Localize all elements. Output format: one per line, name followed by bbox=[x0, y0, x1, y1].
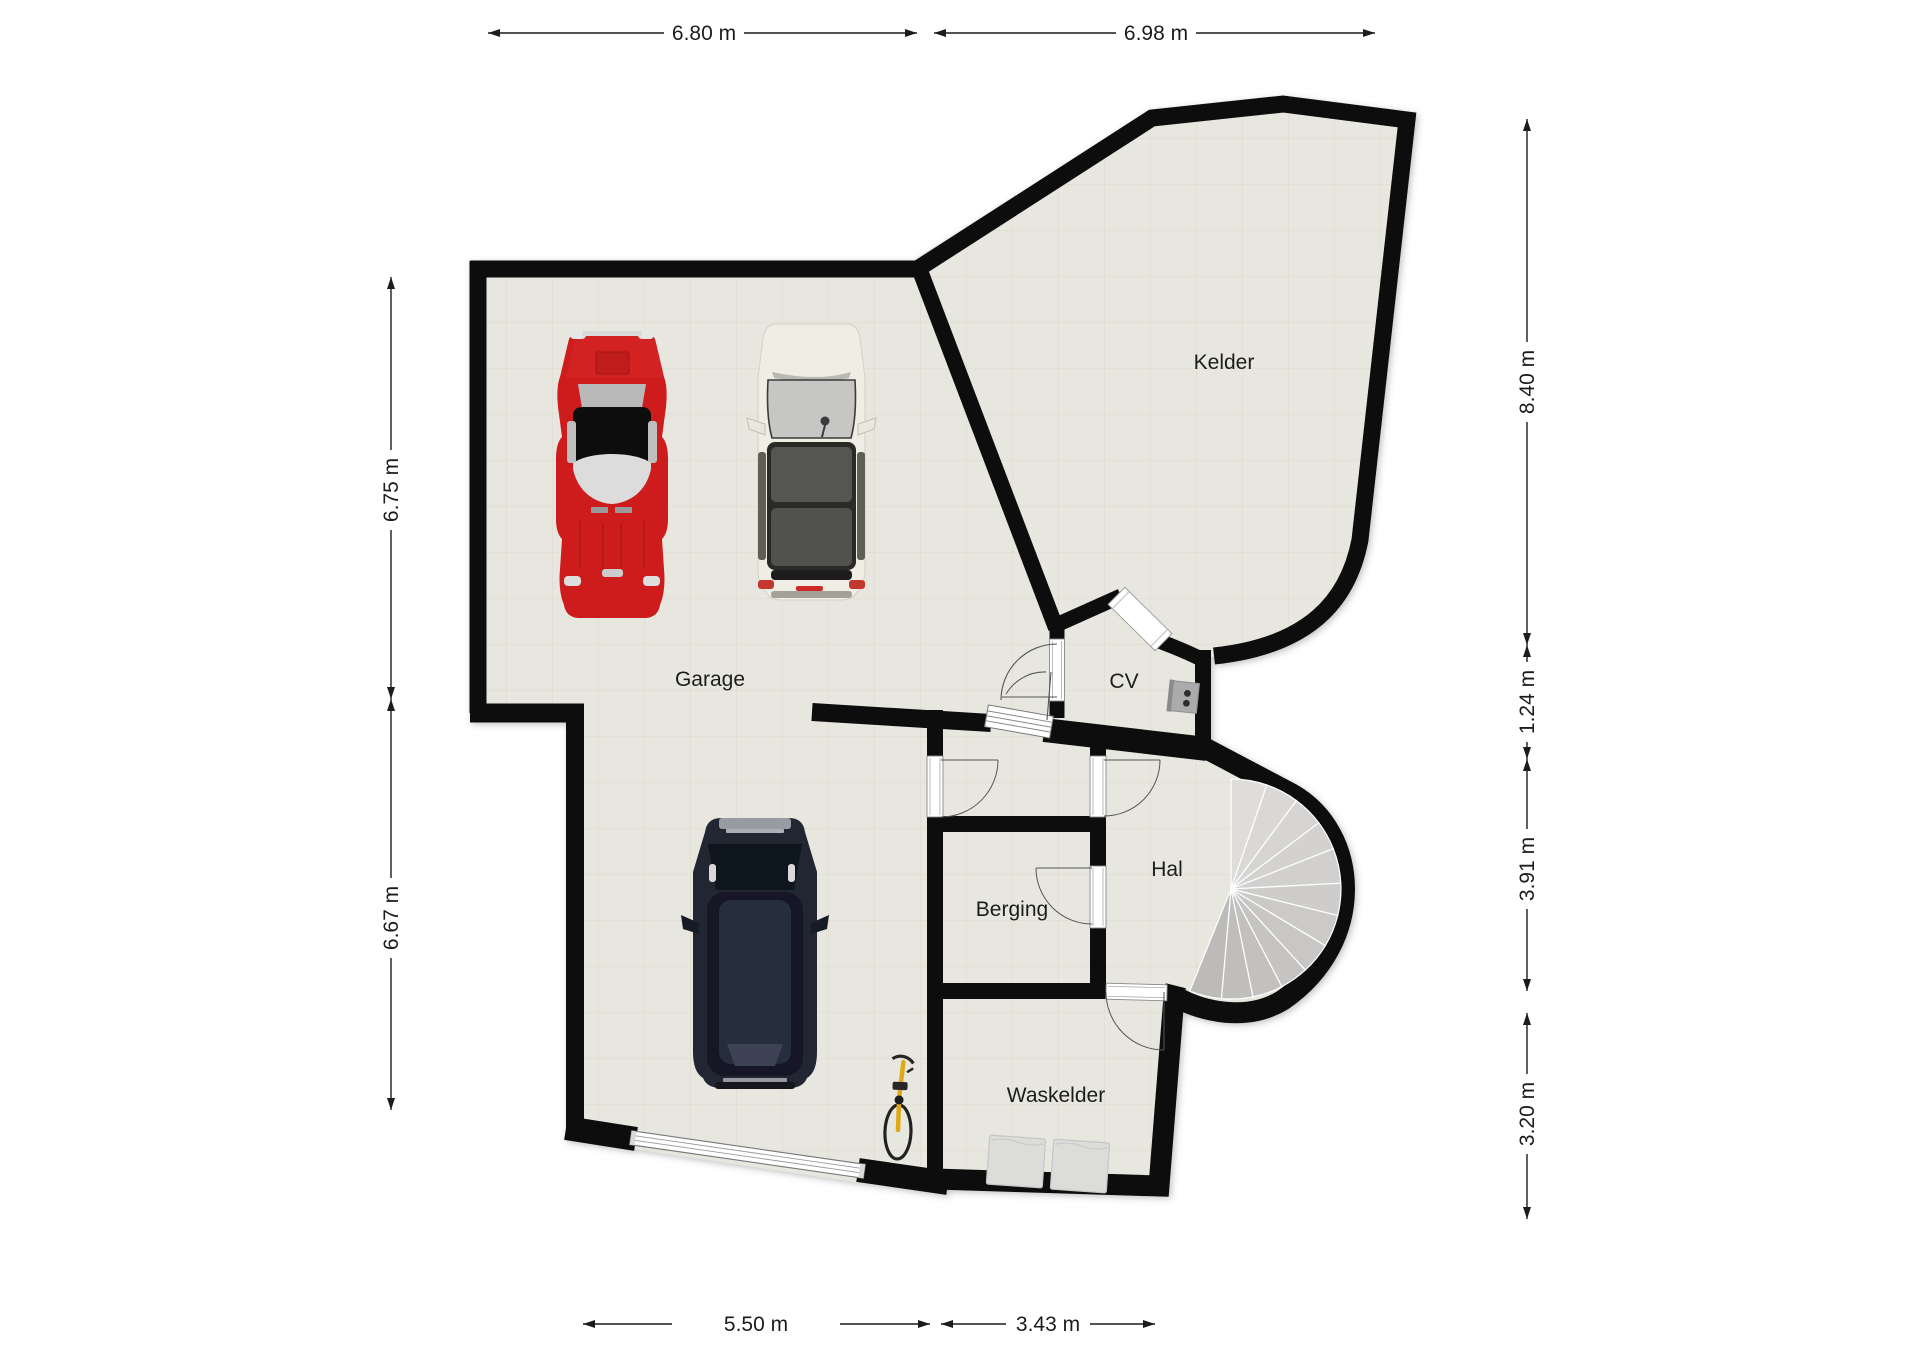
svg-text:Garage: Garage bbox=[675, 668, 745, 691]
svg-text:3.20 m: 3.20 m bbox=[1516, 1082, 1539, 1146]
svg-text:6.80 m: 6.80 m bbox=[672, 22, 736, 45]
svg-text:8.40 m: 8.40 m bbox=[1516, 350, 1539, 414]
svg-text:6.75 m: 6.75 m bbox=[380, 458, 403, 522]
svg-text:6.67 m: 6.67 m bbox=[380, 886, 403, 950]
svg-text:Berging: Berging bbox=[976, 898, 1048, 921]
svg-text:5.50 m: 5.50 m bbox=[724, 1313, 788, 1336]
svg-text:Kelder: Kelder bbox=[1194, 351, 1255, 374]
svg-text:Hal: Hal bbox=[1151, 858, 1183, 881]
svg-text:Waskelder: Waskelder bbox=[1007, 1084, 1105, 1107]
svg-text:6.98 m: 6.98 m bbox=[1124, 22, 1188, 45]
svg-text:CV: CV bbox=[1109, 670, 1138, 693]
svg-text:3.43 m: 3.43 m bbox=[1016, 1313, 1080, 1336]
svg-text:3.91 m: 3.91 m bbox=[1516, 837, 1539, 901]
svg-text:1.24 m: 1.24 m bbox=[1516, 670, 1539, 734]
